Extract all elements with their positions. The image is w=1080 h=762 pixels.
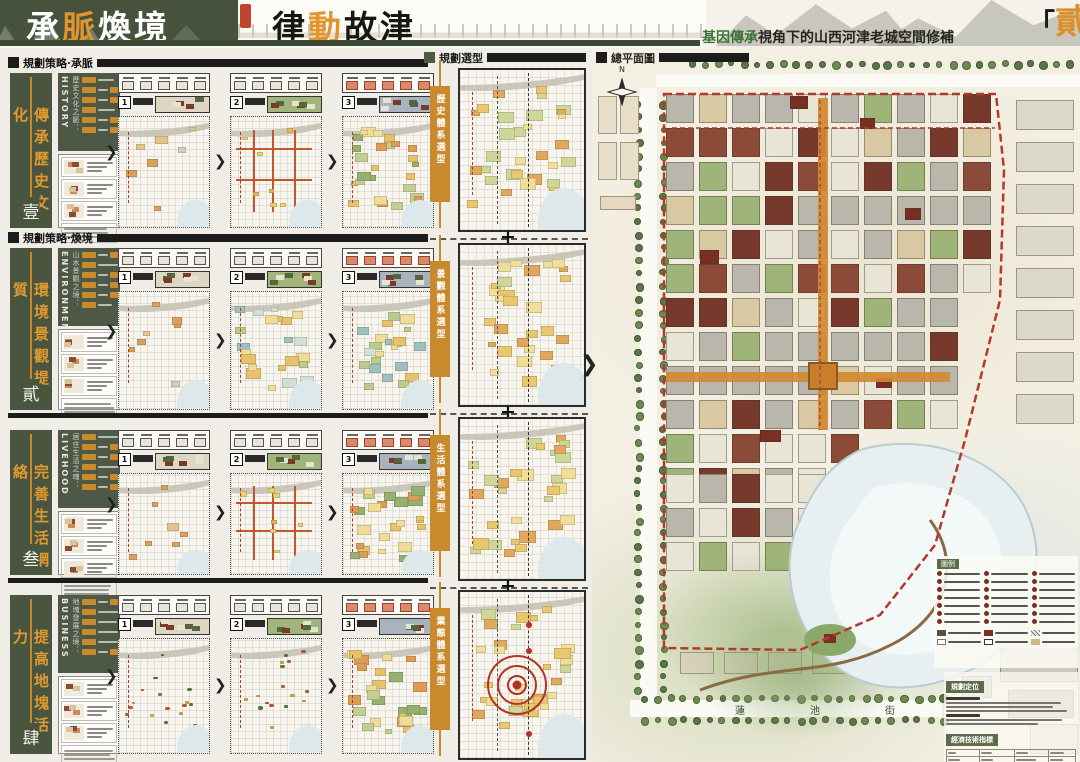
step-number: 3 (342, 618, 355, 631)
quote-open: 「 (1028, 9, 1055, 40)
row-eng-label: HISTORY (60, 76, 69, 129)
analysis-map (118, 473, 210, 575)
main-title-left: 承脈煥境 (26, 1, 170, 44)
analysis-map (118, 638, 210, 754)
step-number: 1 (118, 96, 131, 109)
title-char: 津 (380, 8, 416, 44)
indicator-table-title: 經濟技術指標 (946, 734, 998, 746)
black-bar (487, 53, 586, 62)
header-mid-panel: 律動故津 (238, 0, 706, 44)
selection-map-panel (458, 417, 586, 581)
compass-north-label: N (619, 65, 625, 74)
icon-strip (230, 73, 322, 93)
row-theme-bar: 環境景觀提質貳 (10, 248, 52, 410)
icon-strip (118, 73, 210, 93)
analysis-map (118, 116, 210, 228)
chevron-right-icon: ❯ (214, 331, 227, 349)
notes-text (946, 697, 1076, 725)
row-number: 貳 (23, 379, 40, 406)
row-mini-cards (58, 511, 120, 575)
title-char: 境 (134, 8, 170, 44)
strategy-map-panel: 3 (342, 248, 434, 410)
title-char: 煥 (98, 8, 134, 44)
row-info-box: BUSINESS地塊發展之境： (58, 595, 120, 673)
icon-strip (118, 595, 210, 615)
strategy-map-panel: 2 (230, 430, 322, 575)
row-eng-label: BUSINESS (60, 598, 69, 659)
step-number: 1 (118, 453, 131, 466)
header: 承脈煥境 律動故津 基因傳承視角下的山西河津老城空間修補 「貳」 (0, 0, 1080, 48)
analysis-map (230, 116, 322, 228)
row-theme-sub: 山水景觀之境： (71, 251, 81, 307)
row-theme-sub: 歷史文化之脈： (71, 76, 81, 132)
legend-title: 圖例 (937, 559, 959, 569)
row-header: 規劃策略·煥境 (8, 231, 428, 244)
icon-strip (230, 430, 322, 450)
selection-tab: 歷史體系選型 (430, 86, 450, 202)
strategy-map-panel: 1 (118, 595, 210, 754)
selection-tab-label: 景觀體系選型 (434, 269, 447, 341)
step-number: 2 (230, 453, 243, 466)
row-eng-label: LIVEHOOD (60, 433, 69, 496)
icon-strip (342, 430, 434, 450)
chevron-right-icon: ❯ (105, 667, 118, 685)
legend-swatches (937, 630, 1075, 645)
row-info-box: ENVIRONMENT山水景觀之境： (58, 248, 120, 326)
strategy-map-panel: 1 (118, 430, 210, 575)
chevron-right-icon: ❯ (326, 331, 339, 349)
row-mini-cards (58, 329, 120, 410)
step-number: 3 (342, 96, 355, 109)
selection-tab-label: 歷史體系選型 (434, 94, 447, 166)
selection-tab: 業態體系選型 (430, 608, 450, 730)
row-theme-sub: 地塊發展之境： (71, 598, 81, 654)
middle-header-label: 規劃選型 (439, 50, 483, 66)
indicator-table (946, 749, 1076, 762)
masterplan-header: 總平面圖 (596, 51, 796, 64)
title-char: 律 (272, 8, 308, 44)
analysis-map (342, 638, 434, 754)
step-number: 3 (342, 453, 355, 466)
green-square-icon (424, 52, 435, 63)
subtitle: 基因傳承視角下的山西河津老城空間修補 (702, 27, 954, 47)
row-mini-cards (58, 676, 120, 754)
legend-items (937, 571, 1075, 627)
main-title-right: 律動故津 (272, 1, 416, 44)
selection-tab: 景觀體系選型 (430, 261, 450, 377)
step-number: 2 (230, 271, 243, 284)
step-number: 2 (230, 618, 243, 631)
header-green-bar (0, 40, 700, 46)
icon-strip (118, 430, 210, 450)
red-seal-icon (240, 4, 251, 28)
black-bar (659, 53, 749, 62)
volume-number: 貳 (1055, 2, 1080, 42)
analysis-map (118, 291, 210, 410)
analysis-map (230, 291, 322, 410)
masterplan-legend: 圖例 (934, 556, 1078, 668)
selection-map-panel (458, 590, 586, 760)
row-number: 叁 (23, 544, 40, 571)
icon-strip (230, 595, 322, 615)
selection-tab: 生活體系選型 (430, 435, 450, 551)
poster-board: 承脈煥境 律動故津 基因傳承視角下的山西河津老城空間修補 「貳」 規劃策略·承脈… (0, 0, 1080, 762)
row-info-box: HISTORY歷史文化之脈： (58, 73, 120, 151)
row-theme-bar: 完善生活網絡叁 (10, 430, 52, 575)
street-name-char: 蓮 (735, 702, 745, 717)
notes-title: 規劃定位 (946, 681, 984, 693)
street-name-char: 池 (810, 702, 820, 717)
analysis-map (230, 473, 322, 575)
icon-strip (342, 73, 434, 93)
strategy-map-panel: 1 (118, 73, 210, 228)
analysis-map (342, 291, 434, 410)
chevron-right-icon: ❯ (214, 503, 227, 521)
strategy-row: 提高地塊活力肆BUSINESS地塊發展之境：❯1❯2❯3 (8, 578, 428, 756)
street-name-char: 街 (885, 702, 895, 717)
strategy-map-panel: 3 (342, 595, 434, 754)
strategy-map-panel: 1 (118, 248, 210, 410)
icon-strip (118, 248, 210, 268)
row-header: 規劃策略·承脈 (8, 56, 428, 69)
step-number: 1 (118, 618, 131, 631)
chevron-right-icon: ❯ (214, 152, 227, 170)
selection-tab-label: 業態體系選型 (434, 616, 447, 688)
row-number: 壹 (23, 197, 40, 224)
chevron-right-icon: ❯ (326, 503, 339, 521)
chevron-right-icon: ❯ (105, 143, 118, 161)
step-number: 2 (230, 96, 243, 109)
row-theme-bar: 提高地塊活力肆 (10, 595, 52, 754)
row-number: 肆 (23, 723, 40, 750)
strategy-map-panel: 2 (230, 248, 322, 410)
step-number: 3 (342, 271, 355, 284)
icon-strip (230, 248, 322, 268)
row-eng-label: ENVIRONMENT (60, 251, 69, 326)
chevron-right-icon: ❯ (326, 152, 339, 170)
row-mini-cards (58, 154, 120, 228)
step-number: 1 (118, 271, 131, 284)
header-left-panel: 承脈煥境 (0, 0, 238, 44)
middle-header: 規劃選型 (424, 51, 586, 64)
icon-strip (342, 595, 434, 615)
title-char: 脈 (62, 8, 98, 44)
row-header-label: 規劃策略·承脈 (23, 55, 93, 71)
analysis-map (342, 473, 434, 575)
analysis-map (342, 116, 434, 228)
chevron-right-icon: ❯ (105, 495, 118, 513)
subtitle-rest: 視角下的山西河津老城空間修補 (758, 30, 954, 46)
strategy-map-panel: 3 (342, 430, 434, 575)
strategy-map-panel: 2 (230, 73, 322, 228)
selection-tab-label: 生活體系選型 (434, 443, 447, 515)
strategy-row: 完善生活網絡叁LIVEHOOD居住生活之魂：❯1❯2❯3 (8, 413, 428, 577)
row-header-label: 規劃策略·煥境 (23, 230, 93, 246)
selection-map-panel (458, 243, 586, 407)
strategy-row: 規劃策略·煥境環境景觀提質貳ENVIRONMENT山水景觀之境：❯1❯2❯3 (8, 231, 428, 412)
subtitle-accent: 基因傳承 (702, 30, 758, 46)
black-square-icon (596, 52, 607, 63)
chevron-right-icon: ❯ (105, 322, 118, 340)
icon-strip (342, 248, 434, 268)
selection-map-panel (458, 68, 586, 232)
row-theme-sub: 居住生活之魂： (71, 433, 81, 489)
analysis-map (230, 638, 322, 754)
masterplan-header-label: 總平面圖 (611, 50, 655, 66)
strategy-map-panel: 2 (230, 595, 322, 754)
strategy-map-panel: 3 (342, 73, 434, 228)
title-char: 故 (344, 8, 380, 44)
plan-notes: 規劃定位 經濟技術指標 (944, 672, 1078, 762)
row-theme-bar: 傳承歷史文化壹 (10, 73, 52, 228)
volume-mark: 「貳」 (1028, 0, 1080, 47)
chevron-right-icon: ❯ (214, 676, 227, 694)
strategy-row: 規劃策略·承脈傳承歷史文化壹HISTORY歷史文化之脈：❯1❯2❯3 (8, 56, 428, 230)
title-char: 動 (308, 8, 344, 44)
title-char: 承 (26, 8, 62, 44)
chevron-right-icon: ❯ (326, 676, 339, 694)
